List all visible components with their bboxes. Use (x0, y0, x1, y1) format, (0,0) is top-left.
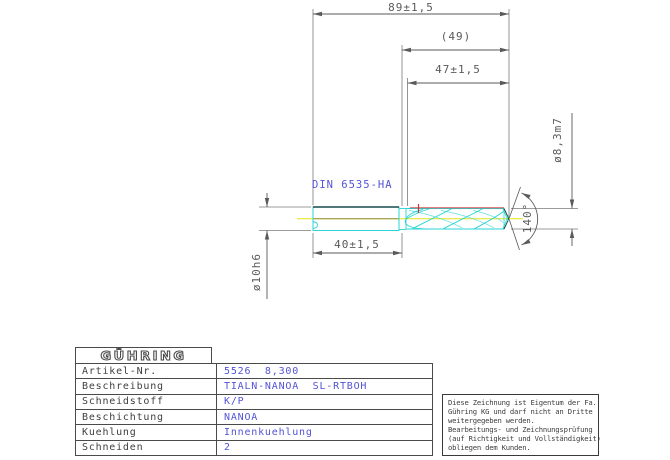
row-value: TIALN-NANOA SL-RTBOH (217, 379, 432, 393)
disclaimer-line: obliegen dem Kunden. (448, 443, 594, 452)
row-label: Schneiden (76, 441, 217, 455)
disclaimer-line: Bearbeitungs- und Zeichnungsprüfung (448, 425, 594, 434)
title-block-table: Artikel-Nr. 5526 8,300 Beschreibung TIAL… (75, 363, 433, 456)
table-row: Schneidstoff K/P (76, 394, 432, 409)
cad-drawing-sheet: 89±1,5 (49) 47±1,5 40±1,5 ø10h6 ø8,3m7 1… (0, 0, 670, 460)
row-label: Beschreibung (76, 379, 217, 393)
disclaimer-line: Gühring KG und darf nicht an Dritte (448, 407, 594, 416)
drill-flute-body (405, 204, 504, 229)
dim-flute-length: 47±1,5 (435, 63, 481, 76)
guhring-logo: GÜHRING (100, 349, 186, 363)
row-value: NANOA (217, 410, 432, 424)
disclaimer-box: Diese Zeichnung ist Eigentum der Fa. Güh… (442, 394, 599, 456)
dim-overall-length: 89±1,5 (388, 1, 434, 14)
dim-point-angle: 140° (521, 203, 534, 234)
row-value: 2 (217, 441, 432, 455)
row-label: Artikel-Nr. (76, 364, 217, 378)
dim-shank-diameter: ø10h6 (250, 253, 263, 291)
row-value: Innenkuehlung (217, 425, 432, 439)
row-value: 5526 8,300 (217, 364, 432, 378)
table-row: Beschreibung TIALN-NANOA SL-RTBOH (76, 378, 432, 393)
dim-shank-length: 40±1,5 (334, 238, 380, 251)
row-value: K/P (217, 395, 432, 409)
disclaimer-line: (auf Richtigkeit und Vollständigkeit) (448, 434, 594, 443)
disclaimer-line: Diese Zeichnung ist Eigentum der Fa. (448, 398, 594, 407)
dim-flute-ref: (49) (441, 30, 472, 43)
shank-standard-label: DIN 6535-HA (312, 179, 393, 191)
dim-cutting-diameter: ø8,3m7 (551, 117, 564, 163)
table-row: Schneiden 2 (76, 440, 432, 455)
disclaimer-line: weitergegeben werden. (448, 416, 594, 425)
row-label: Schneidstoff (76, 395, 217, 409)
row-label: Beschichtung (76, 410, 217, 424)
table-row: Artikel-Nr. 5526 8,300 (76, 364, 432, 378)
row-label: Kuehlung (76, 425, 217, 439)
table-row: Beschichtung NANOA (76, 409, 432, 424)
table-row: Kuehlung Innenkuehlung (76, 424, 432, 439)
